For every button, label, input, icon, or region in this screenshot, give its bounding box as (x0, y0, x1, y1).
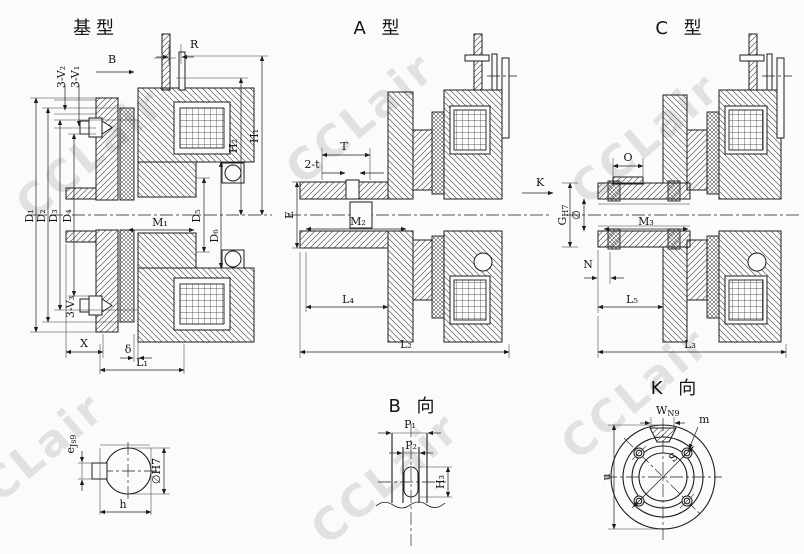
dim-label-n: N (583, 258, 593, 271)
keyway (650, 428, 676, 442)
bearing (748, 253, 766, 271)
terminal-stud (474, 34, 482, 90)
dim-label-t: T (340, 140, 348, 153)
dim-label-dia: ∅ (570, 210, 583, 220)
c-type-title: C 型 (655, 18, 706, 39)
friction-lining (432, 112, 444, 194)
set-screw (608, 181, 620, 201)
dim-label-delta: δ (125, 343, 132, 356)
flange-slot (346, 180, 359, 199)
watermark: CCLair (0, 382, 115, 535)
dim-label-h: h (119, 498, 126, 511)
bearing (225, 165, 241, 181)
dim-label-d4: D₄ (61, 209, 74, 223)
dim-label-m: m (699, 413, 710, 426)
dim-label-w-n9: WN9 (656, 404, 679, 418)
dim-label-m3: M₃ (638, 215, 654, 228)
dim-label-h1: H₁ (248, 129, 261, 143)
dim-label-l4: L₄ (342, 293, 354, 306)
dim-label-2t: 2-t (304, 158, 320, 171)
dim-label-m1: M₁ (152, 216, 168, 229)
a-type-title: A 型 (353, 18, 404, 39)
dim-label-w: W (656, 404, 668, 417)
b-view-title: B 向 (388, 396, 439, 417)
dim-label-r: R (190, 38, 199, 51)
dim-label-o: O (623, 151, 632, 164)
dim-label-e: E (283, 211, 296, 219)
view-arrow-b-label: B (108, 53, 116, 66)
dim-label-w-sub: N9 (667, 409, 679, 418)
k-view-title: K 向 (651, 378, 702, 399)
technical-drawing-canvas: CCLair CCLair CCLair CCLair CCLair CCLai… (0, 0, 804, 554)
dim-label-l5: L₅ (626, 293, 638, 306)
flange-web (663, 95, 687, 183)
keyway-slot (92, 463, 107, 479)
dim-label-h3: H₃ (434, 475, 447, 489)
dim-label-g-h7: GH7 (556, 205, 570, 226)
dim-label-s: S (666, 450, 681, 465)
terminal-stud (749, 34, 757, 90)
flange-disc (300, 182, 388, 199)
dim-label-g: G (556, 217, 569, 226)
dim-label-d5: D₅ (190, 209, 203, 222)
view-base-type: 基型 B R (23, 18, 272, 374)
dim-label-l2: L₂ (400, 338, 412, 351)
dim-label-g-sub: H7 (561, 205, 570, 217)
dim-label-l1: L₁ (136, 356, 148, 369)
dim-label-3v1: 3-V₁ (69, 66, 82, 88)
dim-label-m2: M₂ (350, 215, 366, 228)
armature-plate (96, 98, 118, 200)
dim-label-p2: P₂ (405, 439, 417, 452)
dim-label-l3: L₃ (684, 338, 696, 351)
dim-label-d3: D₃ (47, 209, 60, 222)
friction-lining (120, 108, 134, 200)
dim-label-x: X (80, 337, 88, 350)
coil-winding (729, 110, 763, 150)
dim-label-3v2: 3-V₂ (55, 66, 68, 88)
flange-web (388, 92, 413, 199)
dim-label-d6: D₆ (208, 229, 221, 243)
friction-lining (707, 112, 719, 194)
dim-label-h2: H₂ (227, 139, 240, 153)
dim-label-u: u (600, 473, 613, 480)
dim-label-e-sub: Js9 (69, 435, 78, 448)
coil-winding (454, 110, 486, 150)
view-arrow-k-label: K (536, 176, 545, 189)
coil-winding (180, 108, 224, 148)
base-type-title: 基型 (73, 18, 119, 39)
dim-label-p1: P₁ (404, 418, 416, 431)
bearing (474, 253, 492, 271)
dim-label-dia-h7: ∅H7 (150, 458, 163, 484)
